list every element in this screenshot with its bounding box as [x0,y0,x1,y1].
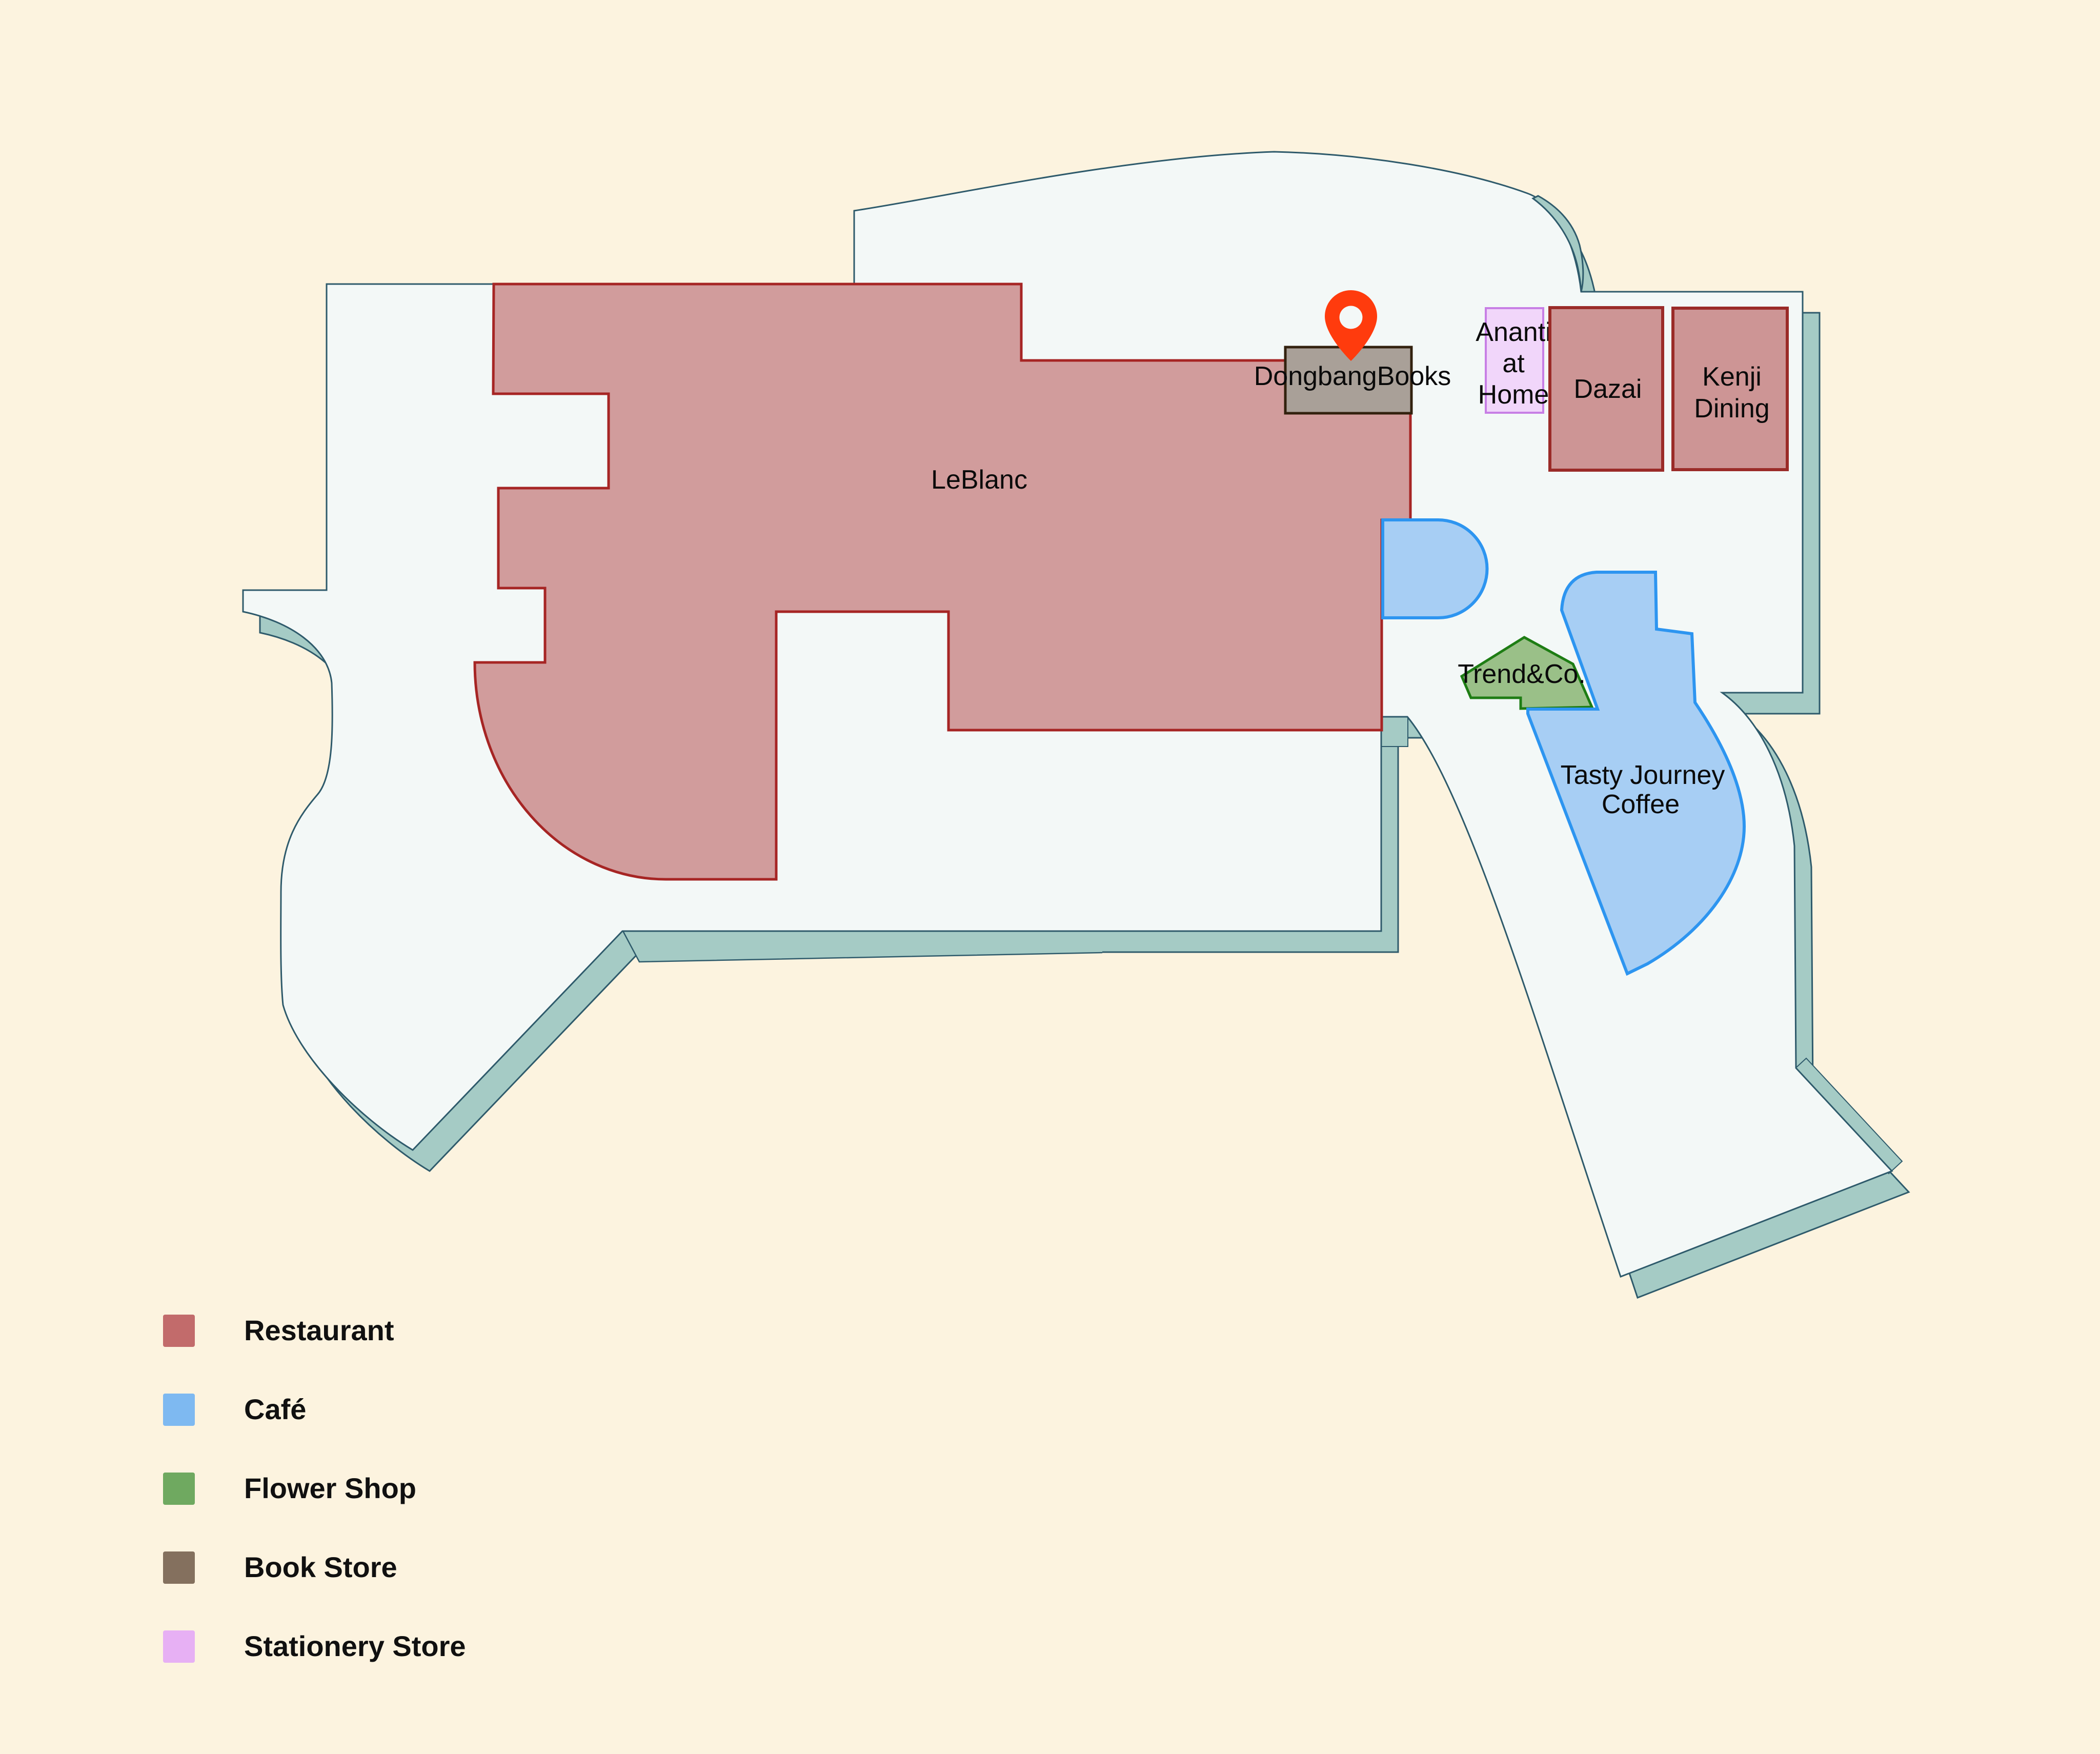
svg-text:Café: Café [244,1393,306,1425]
svg-text:Home: Home [1478,380,1549,410]
svg-text:Coffee: Coffee [1602,790,1680,819]
svg-text:LeBlanc: LeBlanc [931,465,1027,495]
svg-text:Restaurant: Restaurant [244,1314,394,1346]
svg-text:Flower Shop: Flower Shop [244,1472,416,1504]
svg-text:at: at [1502,349,1525,378]
svg-text:Stationery Store: Stationery Store [244,1630,466,1662]
svg-text:Tasty Journey: Tasty Journey [1561,760,1725,790]
svg-text:Trend&Co.: Trend&Co. [1458,659,1586,689]
svg-text:Dining: Dining [1694,394,1769,424]
svg-text:Book Store: Book Store [244,1551,397,1583]
svg-text:Ananti: Ananti [1476,317,1551,347]
svg-text:DongbangBooks: DongbangBooks [1254,361,1451,391]
svg-text:Dazai: Dazai [1574,374,1642,404]
svg-text:Kenji: Kenji [1702,362,1762,392]
